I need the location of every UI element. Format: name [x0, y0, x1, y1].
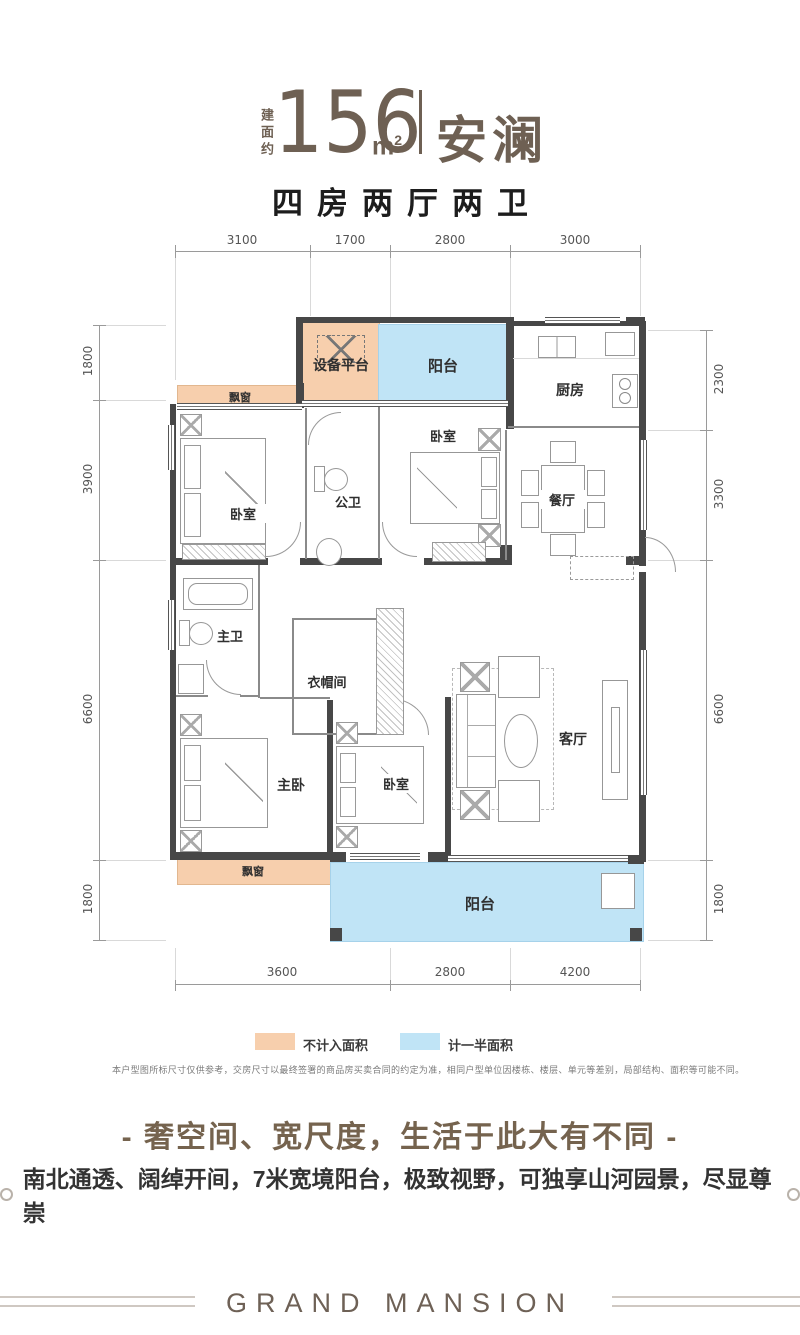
- partition: [258, 565, 260, 698]
- window: [168, 425, 175, 470]
- closet-wardrobe: [376, 608, 404, 735]
- fridge: [605, 332, 635, 356]
- ext-line: [640, 258, 641, 316]
- label-bedroom-bottom: 卧室: [372, 774, 420, 793]
- bathtub-inner: [188, 583, 248, 605]
- dim-right-3: 6600: [712, 679, 726, 739]
- dim-right-4: 1800: [712, 869, 726, 929]
- unit-name: 安澜: [436, 99, 548, 173]
- partition: [292, 618, 294, 735]
- ext-line: [640, 948, 641, 980]
- wall: [445, 697, 451, 860]
- partition: [240, 695, 258, 697]
- wall: [300, 558, 382, 565]
- tick: [700, 860, 713, 861]
- tick: [700, 940, 713, 941]
- wall: [296, 317, 510, 323]
- nightstand: [336, 722, 358, 744]
- sofa-back-line: [467, 695, 468, 787]
- ext-line: [648, 940, 700, 941]
- ext-line: [310, 258, 311, 316]
- ext-line: [648, 330, 700, 331]
- partition: [378, 404, 380, 559]
- door-arc: [266, 522, 301, 557]
- door-arc: [206, 660, 241, 695]
- blanket: [417, 461, 457, 515]
- tick: [700, 430, 713, 431]
- ext-line: [510, 258, 511, 318]
- ext-line: [106, 560, 166, 561]
- tv: [611, 707, 620, 773]
- wall: [327, 700, 333, 858]
- kitchen-sink: [538, 336, 576, 358]
- dim-top-1: 3100: [212, 233, 272, 247]
- toilet-bowl: [324, 468, 348, 491]
- ring-icon: [787, 1188, 800, 1201]
- pillow: [340, 753, 356, 783]
- label-bedroom-mid: 卧室: [418, 426, 468, 445]
- label-master-bedroom: 主卧: [268, 775, 314, 795]
- tick: [700, 330, 713, 331]
- partition: [508, 426, 639, 428]
- title-divider: [419, 90, 422, 154]
- dim-left-2: 3900: [81, 449, 95, 509]
- burner: [619, 392, 631, 404]
- chair: [587, 470, 605, 496]
- disclaimer-text: 本户型图所标尺寸仅供参考，交房尺寸以最终签署的商品房买卖合同的约定为准，相同户型…: [112, 1063, 718, 1076]
- tick: [93, 560, 106, 561]
- window: [168, 600, 175, 650]
- dim-left-4: 1800: [81, 869, 95, 929]
- pillow: [340, 787, 356, 817]
- ext-line: [106, 940, 166, 941]
- chair: [550, 441, 576, 463]
- side-table: [460, 790, 490, 820]
- dim-line-right: [706, 330, 707, 940]
- wardrobe: [432, 542, 486, 562]
- ext-line: [390, 258, 391, 318]
- marketing-subline-text: 南北通透、阔绰开间，7米宽境阳台，极致视野，可独享山河园景，尽显尊崇: [23, 1160, 777, 1228]
- pillow: [184, 445, 201, 489]
- coffee-table: [504, 714, 538, 768]
- balcony-door: [378, 400, 508, 407]
- legend-label-not-counted: 不计入面积: [303, 1035, 368, 1054]
- partition: [305, 408, 307, 559]
- label-bay-window-top: 飘窗: [217, 389, 263, 405]
- counter-line: [513, 358, 639, 359]
- dim-top-4: 3000: [545, 233, 605, 247]
- tick: [510, 245, 511, 258]
- label-bedroom-left: 卧室: [218, 504, 268, 523]
- chair: [521, 470, 539, 496]
- window: [640, 650, 647, 795]
- bed-left-bedroom: [180, 438, 266, 544]
- pillow: [184, 493, 201, 537]
- wall: [330, 928, 342, 941]
- side-table: [460, 662, 490, 692]
- ext-line: [106, 325, 166, 326]
- sliding-door: [448, 855, 628, 862]
- bathroom-sink: [178, 664, 204, 694]
- label-equipment-platform: 设备平台: [306, 355, 376, 375]
- dim-left-3: 6600: [81, 679, 95, 739]
- label-living: 客厅: [550, 729, 596, 749]
- tick: [700, 560, 713, 561]
- window: [640, 440, 647, 530]
- tick: [93, 325, 106, 326]
- wall: [506, 317, 514, 429]
- balcony-door: [350, 853, 420, 860]
- chair: [521, 502, 539, 528]
- nightstand: [478, 428, 501, 451]
- bathroom-sink: [316, 538, 342, 566]
- dim-right-2: 3300: [712, 464, 726, 524]
- dim-line-left: [99, 325, 100, 940]
- dim-line-bottom: [175, 984, 640, 985]
- label-kitchen: 厨房: [545, 380, 595, 400]
- chair: [587, 502, 605, 528]
- dim-right-1: 2300: [712, 349, 726, 409]
- door-arc: [308, 412, 341, 445]
- label-bath-public: 公卫: [326, 492, 370, 511]
- armchair: [498, 780, 540, 822]
- wardrobe: [182, 544, 266, 560]
- dim-bottom-1: 3600: [252, 965, 312, 979]
- bed-master-bedroom: [180, 738, 268, 828]
- tick: [93, 400, 106, 401]
- nightstand: [180, 414, 202, 436]
- bathtub: [183, 578, 253, 610]
- ring-icon: [0, 1188, 13, 1201]
- dim-left-1: 1800: [81, 331, 95, 391]
- dim-line-top: [175, 251, 640, 252]
- window: [545, 317, 620, 324]
- dim-bottom-3: 4200: [545, 965, 605, 979]
- label-balcony-bottom: 阳台: [450, 893, 510, 914]
- pillow: [481, 489, 497, 519]
- pillow: [184, 785, 201, 821]
- pillow: [184, 745, 201, 781]
- door-arc: [382, 522, 417, 557]
- wall: [170, 852, 332, 860]
- ext-line: [510, 948, 511, 980]
- tick: [93, 860, 106, 861]
- wall: [628, 855, 644, 864]
- area-unit: m2: [372, 132, 402, 161]
- sofa-seat-line: [467, 756, 495, 757]
- stove: [612, 374, 638, 408]
- tick: [93, 940, 106, 941]
- dim-top-3: 2800: [420, 233, 480, 247]
- entry-door-arc: [645, 537, 676, 572]
- ext-line: [106, 860, 166, 861]
- shoe-cabinet: [570, 556, 634, 580]
- label-bath-master: 主卫: [208, 626, 252, 645]
- ext-line: [648, 430, 700, 431]
- tick: [175, 245, 176, 258]
- blanket: [225, 751, 263, 813]
- chair: [550, 534, 576, 556]
- bed-mid-bedroom: [410, 452, 500, 524]
- label-balcony-top: 阳台: [413, 355, 473, 376]
- ext-line: [648, 860, 700, 861]
- legend-label-half-counted: 计一半面积: [448, 1035, 513, 1054]
- dim-bottom-2: 2800: [420, 965, 480, 979]
- ext-line: [175, 948, 176, 980]
- dim-top-2: 1700: [320, 233, 380, 247]
- tick: [310, 245, 311, 258]
- sofa: [456, 694, 496, 788]
- nightstand: [180, 830, 202, 852]
- window: [302, 400, 378, 407]
- tv-cabinet: [602, 680, 628, 800]
- label-closet: 衣帽间: [296, 672, 358, 691]
- legend-swatch-not-counted: [255, 1033, 295, 1050]
- label-dining: 餐厅: [539, 490, 585, 509]
- partition: [260, 697, 330, 699]
- floorplan-page: 建面约 156 m2 安澜 四房两厅两卫 3100 1700 2800 3000…: [0, 0, 800, 1335]
- tick: [390, 245, 391, 258]
- marketing-headline: - 奢空间、宽尺度，生活于此大有不同 -: [0, 1112, 800, 1156]
- label-bay-window-bottom: 飘窗: [230, 863, 276, 879]
- partition: [505, 430, 507, 560]
- washing-machine: [601, 873, 635, 909]
- tick: [640, 245, 641, 258]
- layout-subtitle: 四房两厅两卫: [0, 178, 800, 223]
- footer-brand: GRAND MANSION: [0, 1288, 800, 1319]
- burner: [619, 378, 631, 390]
- armchair: [498, 656, 540, 698]
- pillow: [481, 457, 497, 487]
- legend-swatch-half-counted: [400, 1033, 440, 1050]
- wall: [630, 928, 642, 941]
- nightstand: [336, 826, 358, 848]
- ext-line: [175, 258, 176, 380]
- partition: [176, 695, 208, 697]
- ext-line: [106, 400, 166, 401]
- nightstand: [180, 714, 202, 736]
- marketing-subline: 南北通透、阔绰开间，7米宽境阳台，极致视野，可独享山河园景，尽显尊崇: [0, 1160, 800, 1228]
- ext-line: [390, 948, 391, 980]
- sofa-seat-line: [467, 725, 495, 726]
